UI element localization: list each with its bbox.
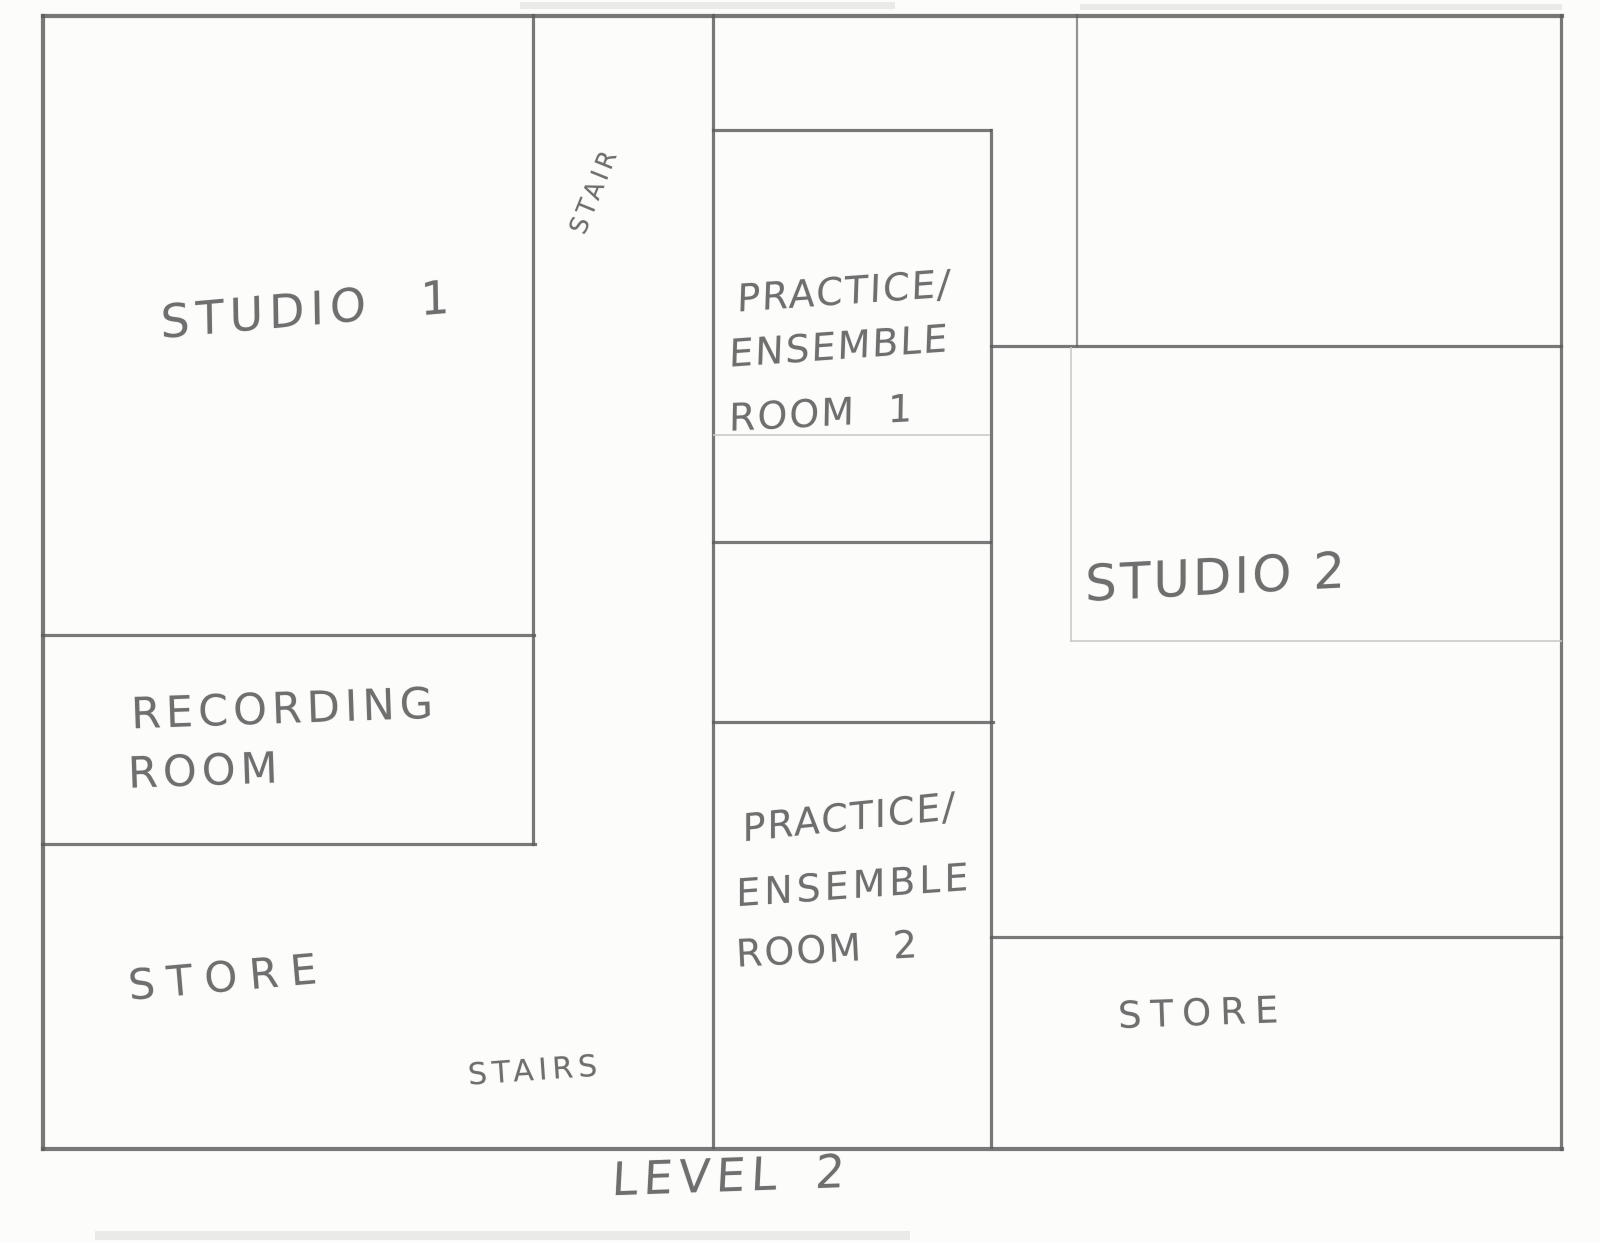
label-recording-room-line1: RECORDING: [130, 683, 438, 737]
construction-line-studio2-left: [1070, 347, 1072, 642]
wall-studio2-top: [990, 345, 1563, 348]
label-store-right: STORE: [1117, 991, 1287, 1034]
label-recording-room-line2: ROOM: [127, 747, 283, 795]
wall-outer-top: [41, 14, 1564, 18]
label-practice-room1-line2: ENSEMBLE: [729, 319, 950, 373]
scan-smudge-top-left: [520, 2, 895, 9]
wall-practice1-top: [712, 129, 992, 132]
label-stairs-bottom: STAIRS: [467, 1051, 603, 1090]
wall-practice1-bottom: [712, 541, 992, 544]
label-practice-room2-line1: PRACTICE/: [743, 787, 957, 848]
wall-corridor-left: [712, 14, 715, 1149]
label-practice-room1-line1: PRACTICE/: [737, 264, 953, 317]
label-store-left: STORE: [127, 947, 331, 1006]
label-practice-room1-line3: ROOM 1: [729, 389, 915, 437]
scan-smudge-bottom: [95, 1231, 910, 1240]
wall-recording-bottom: [41, 843, 537, 846]
scan-smudge-top-right: [1080, 4, 1562, 10]
wall-outer-right: [1560, 14, 1563, 1151]
label-studio-1: STUDIO 1: [160, 273, 456, 345]
wall-outer-left: [41, 14, 45, 1151]
wall-recording-top: [41, 634, 536, 637]
wall-practice2-top: [712, 721, 995, 724]
label-level-caption: LEVEL 2: [611, 1148, 852, 1202]
wall-corridor-right: [990, 129, 993, 1149]
label-studio-2: STUDIO 2: [1085, 545, 1348, 609]
label-stair-top: STAIR: [565, 144, 622, 238]
wall-studio1-right: [532, 14, 535, 846]
construction-line-studio2-bottom: [1070, 640, 1562, 642]
label-practice-room2-line3: ROOM 2: [735, 925, 920, 973]
wall-store-right-top: [990, 936, 1563, 939]
floor-plan-sketch: STUDIO 1 STAIR PRACTICE/ ENSEMBLE ROOM 1…: [0, 0, 1600, 1243]
label-practice-room2-line2: ENSEMBLE: [736, 858, 972, 913]
wall-topright-room-left: [1076, 14, 1078, 347]
